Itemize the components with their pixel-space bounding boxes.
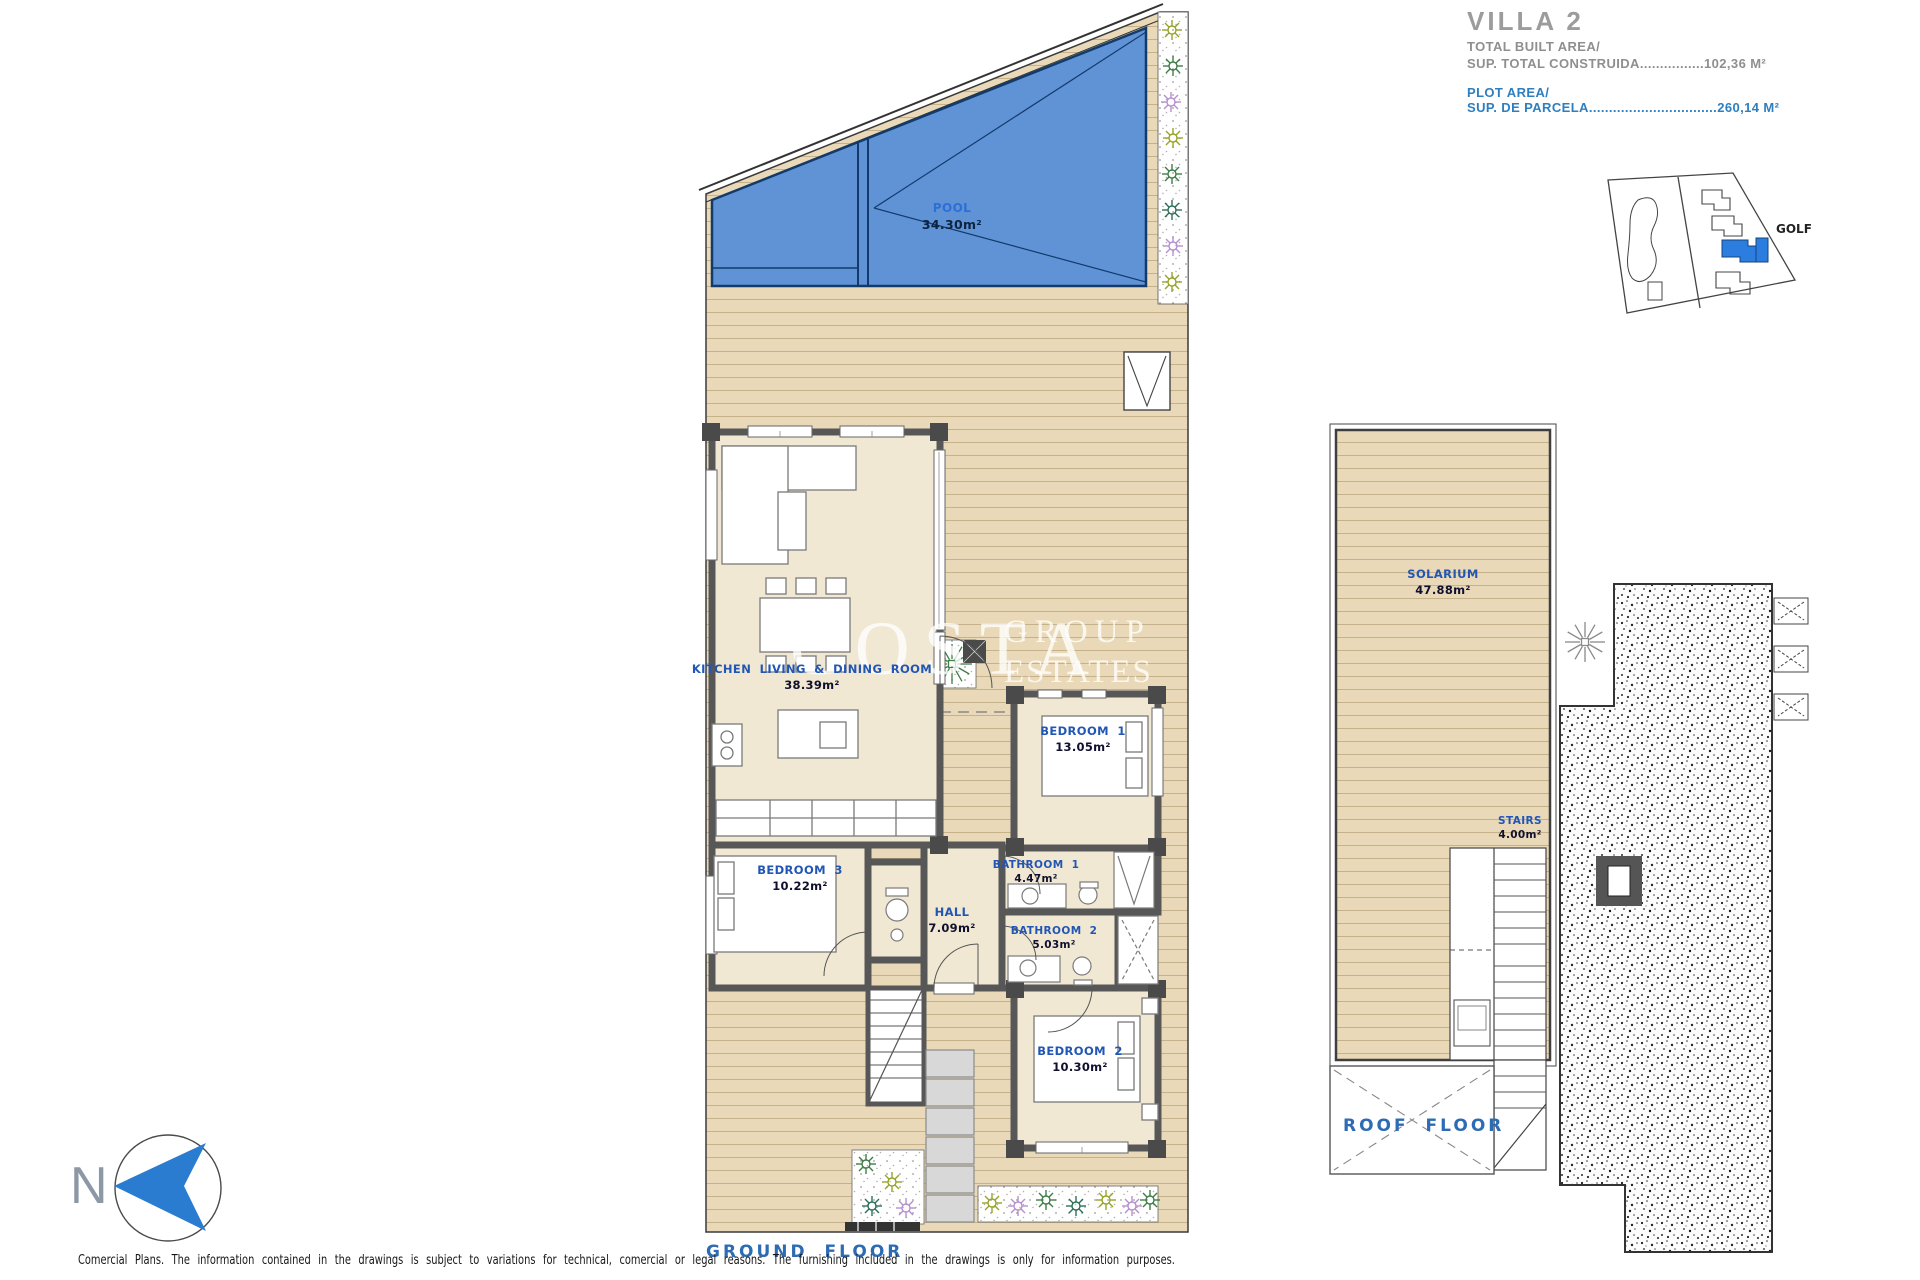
room-label-bathroom2: BATHROOM 2 5.03m² (1011, 921, 1098, 951)
roof-floor-caption: ROOF FLOOR (1343, 1116, 1504, 1136)
ac-units (1774, 598, 1808, 720)
built-area-value: SUP. TOTAL CONSTRUIDA................102… (1467, 56, 1779, 71)
gravel-roof (1560, 584, 1772, 1252)
room-label-stairs: STAIRS 4.00m² (1498, 811, 1542, 841)
room-label-hall: HALL 7.09m² (928, 903, 975, 935)
watermark-group: GROUP (1004, 614, 1151, 651)
vegetation-strip (1158, 12, 1188, 304)
room-label-solarium: SOLARIUM 47.88m² (1407, 565, 1478, 597)
site-map-golf-label: GOLF (1776, 222, 1812, 236)
north-arrow-icon (114, 1143, 206, 1231)
room-label-pool: POOL 34.30m² (922, 199, 982, 232)
plot-area-label: PLOT AREA/ (1467, 85, 1779, 100)
north-compass (114, 1135, 221, 1241)
floor-plan-sheet: COSTA GROUP ESTATES VILLA 2 TOTAL BUILT … (0, 0, 1920, 1280)
room-label-bathroom1: BATHROOM 1 4.47m² (993, 855, 1080, 885)
roof-tree (1565, 622, 1605, 662)
room-label-kitchen-living: KITCHEN LIVING & DINING ROOM 38.39m² (692, 660, 932, 692)
plot-area-value: SUP. DE PARCELA.........................… (1467, 100, 1779, 115)
outdoor-shower (1124, 352, 1170, 410)
villa-title: VILLA 2 (1467, 6, 1779, 37)
disclaimer-text: Comercial Plans. The information contain… (78, 1252, 1175, 1268)
pool (712, 28, 1146, 286)
title-block: VILLA 2 TOTAL BUILT AREA/ SUP. TOTAL CON… (1467, 6, 1779, 115)
room-label-bedroom3: BEDROOM 3 10.22m² (757, 861, 843, 893)
watermark-estates: ESTATES (1004, 654, 1153, 691)
built-area-label: TOTAL BUILT AREA/ (1467, 39, 1779, 54)
room-label-bedroom1: BEDROOM 1 13.05m² (1040, 722, 1126, 754)
north-letter: N (70, 1156, 108, 1216)
site-map (1608, 173, 1795, 313)
interior-stairs (868, 988, 924, 1104)
room-label-bedroom2: BEDROOM 2 10.30m² (1037, 1042, 1123, 1074)
